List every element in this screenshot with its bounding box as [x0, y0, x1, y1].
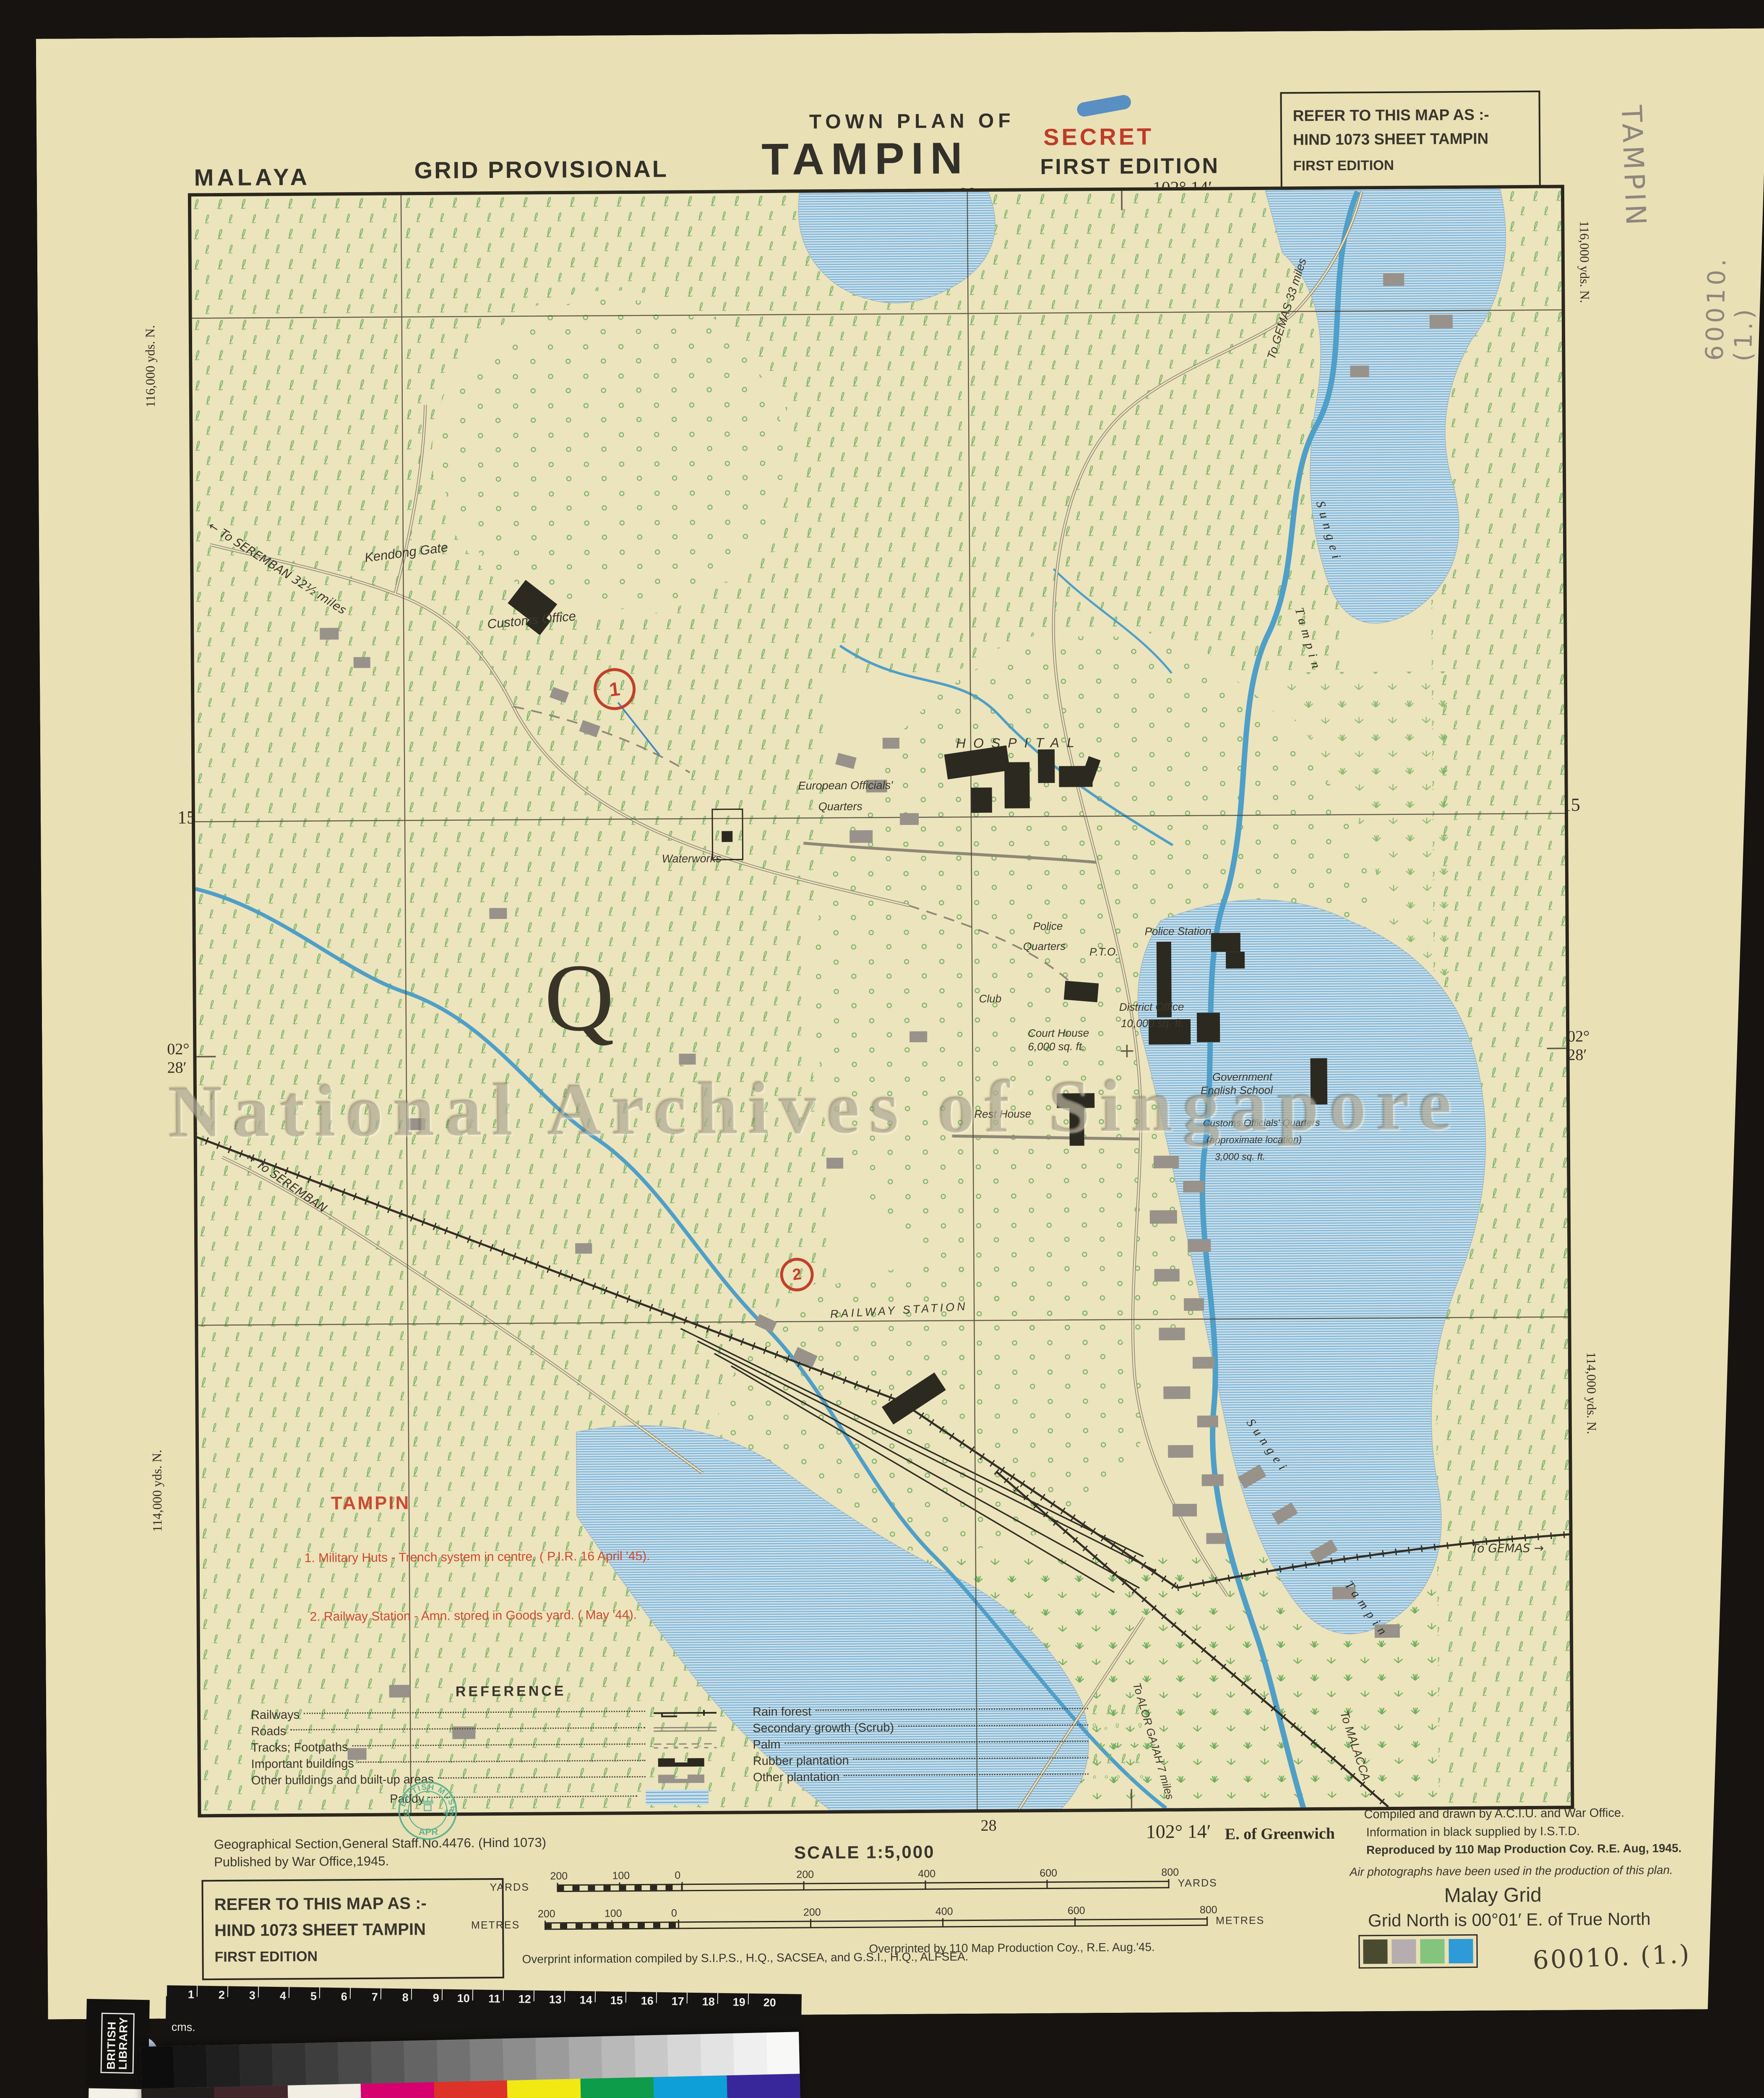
legend-row-other-plantation: Other plantation ₒ ₒ ₒ ₒ ₒ: [753, 1767, 1177, 1786]
margin-label: 28′: [167, 1059, 187, 1077]
cm-ruler-cell: 7: [349, 1988, 380, 2018]
map-sheet: MALAYA GRID PROVISIONAL TOWN PLAN OF TAM…: [36, 28, 1764, 2019]
grayscale-step: [371, 2041, 405, 2084]
map-label: Police: [1033, 920, 1063, 933]
color-patch: [434, 2080, 508, 2098]
grayscale-step: [239, 2044, 273, 2087]
secret-stamp: SECRET: [1043, 123, 1154, 151]
yards-ticks: 2001000200400600800: [557, 1866, 1211, 1871]
important-building-icon: [650, 1754, 734, 1769]
ink-blot: [1076, 94, 1132, 118]
color-patch: [580, 2077, 655, 2098]
map-title: TAMPIN: [761, 133, 969, 185]
paddy-symbol-icon: [641, 1788, 725, 1807]
map-label: Police Station: [1145, 925, 1212, 938]
red-note-title: TAMPIN: [331, 1493, 411, 1514]
map-label: European Officials': [798, 779, 893, 792]
map-area: ℓ ℓ: [188, 185, 1574, 1817]
scale-title: SCALE 1:5,000: [794, 1842, 935, 1863]
cm-ruler-cell: 10: [441, 1989, 472, 2019]
map-label: Court House: [1028, 1026, 1089, 1040]
map-label: Government: [1212, 1070, 1272, 1084]
scale-bar-yards: YARDS 2001000200400600800 YARDS: [557, 1866, 1211, 1900]
legend-row-other-buildings: Other buildings and built-up areas: [251, 1770, 734, 1789]
margin-labels: 28102° 14′116,000 yds. N.1502°28′114,000…: [36, 28, 1764, 39]
margin-label: 28′: [1567, 1046, 1587, 1064]
color-patch: [654, 2075, 728, 2098]
grayscale-step: [733, 2033, 767, 2075]
map-label: HOSPITAL: [956, 735, 1082, 751]
grayscale-step: [437, 2039, 471, 2082]
cm-ruler-cell: 3: [227, 1986, 258, 2016]
published-credit: Published by War Office,1945.: [214, 1854, 389, 1870]
legend-right-column: Rain forest ℓ ℓ ℓ ℓ Secondary growth (Sc…: [753, 1701, 1177, 1806]
margin-label: 116,000 yds. N.: [1576, 221, 1592, 303]
legend-row-rubber: Rubber plantation ℓ ℓ ℓ ℓ: [753, 1751, 1177, 1769]
legend-row-palm: Palm: [753, 1734, 1176, 1753]
cm-ruler-cell: 5: [288, 1987, 319, 2017]
color-patch: [288, 2084, 362, 2098]
margin-label: 28: [981, 1816, 997, 1835]
grayscale-step: [404, 2040, 438, 2083]
cm-ruler-cell: 18: [686, 1993, 717, 2022]
cm-ruler-cell: 20: [748, 1994, 779, 2023]
information-credit: Information in black supplied by I.S.T.D…: [1366, 1824, 1580, 1840]
other-building-icon: [650, 1771, 734, 1785]
margin-label: 114,000 yds. N.: [149, 1450, 165, 1532]
compiled-credit: Compiled and drawn by A.C.I.U. and War O…: [1364, 1806, 1624, 1822]
grayscale-step: [305, 2042, 339, 2085]
scanned-map-page: MALAYA GRID PROVISIONAL TOWN PLAN OF TAM…: [0, 0, 1764, 2098]
metres-unit-left: METRES: [471, 1919, 520, 1932]
red-note-1: 1. Military Huts - Trench system in cent…: [305, 1549, 650, 1566]
palm-icon: [1092, 1735, 1176, 1750]
grayscale-step: [338, 2041, 372, 2084]
cm-ruler-unit: cms.: [172, 2021, 195, 2034]
secondary-growth-icon: º ₒ º ₒ º: [1092, 1721, 1176, 1732]
grid-provisional-title: GRID PROVISIONAL: [414, 155, 668, 184]
legend-title: REFERENCE: [251, 1682, 771, 1701]
region-title: MALAYA: [194, 163, 310, 191]
grayscale-step: [766, 2032, 800, 2075]
grayscale-step: [503, 2038, 537, 2081]
edition-title: FIRST EDITION: [1040, 153, 1219, 180]
grayscale-step: [634, 2035, 668, 2077]
annotation-number: 1: [608, 677, 621, 701]
map-label: 6,000 sq. ft.: [1028, 1040, 1085, 1053]
map-label: P.T.O.: [1089, 945, 1119, 958]
margin-label: 02°: [1567, 1027, 1589, 1046]
map-label: (approximate location): [1206, 1134, 1302, 1146]
grid-north-note: Grid North is 00°01′ E. of True North: [1368, 1909, 1651, 1931]
metres-unit-right: METRES: [1216, 1915, 1264, 1927]
map-label: Quarters: [818, 800, 862, 814]
cm-ruler-cell: 12: [503, 1990, 534, 2020]
grayscale-step: [469, 2038, 503, 2081]
stamp-month: APR: [419, 1827, 438, 1837]
refer-line-2: HIND 1073 SHEET TAMPIN: [1293, 126, 1528, 152]
yards-unit-right: YARDS: [1178, 1877, 1217, 1890]
margin-label: 102° 14′: [1146, 1820, 1211, 1843]
cm-ruler-cell: 2: [196, 1986, 227, 2015]
malay-grid-label: Malay Grid: [1444, 1884, 1542, 1907]
grayscale-step: [206, 2045, 240, 2088]
railway-symbol-icon: [649, 1706, 733, 1719]
grayscale-step: [141, 2046, 175, 2089]
plan-of-title: TOWN PLAN OF: [809, 109, 1015, 133]
map-label: English School: [1201, 1084, 1273, 1097]
pencil-accession-number: 60010. (1.): [1700, 255, 1760, 362]
map-label: Waterworks: [662, 852, 721, 866]
legend-left-column: Railways Roads Tracks; Footpaths Im: [251, 1704, 734, 1809]
map-label: To GEMAS →: [1472, 1541, 1544, 1555]
map-label: Rest House: [974, 1107, 1031, 1121]
cm-ruler-cell: 9: [411, 1989, 442, 2019]
cm-ruler-cell: 8: [380, 1988, 411, 2018]
color-patch: [361, 2082, 435, 2098]
road-symbol-icon: [649, 1722, 733, 1735]
grayscale-step: [173, 2045, 207, 2088]
map-label: Customs Officials' Quarters: [1203, 1117, 1320, 1129]
refer-line-3: FIRST EDITION: [1293, 154, 1528, 177]
annotation-number: 2: [792, 1265, 803, 1284]
stamp-left-digit: 9: [403, 1807, 408, 1818]
cm-ruler-cell: 13: [533, 1991, 564, 2020]
map-label: 3,000 sq. ft.: [1215, 1151, 1265, 1163]
british-library-logo: BRITISH LIBRARY: [100, 2012, 134, 2073]
color-patch: [507, 2079, 582, 2098]
legend: REFERENCE Railways Roads Tracks; Footpat…: [251, 1679, 1200, 1809]
map-label: Quarters: [1023, 940, 1066, 953]
color-swatch: [1363, 1939, 1387, 1964]
air-photo-note: Air photographs have been used in the pr…: [1350, 1863, 1673, 1879]
map-label: District Office: [1119, 1000, 1184, 1014]
cm-ruler-cell: 16: [625, 1992, 656, 2022]
rain-forest-icon: ℓ ℓ ℓ ℓ: [1092, 1702, 1176, 1717]
margin-label: E. of Greenwich: [1225, 1824, 1335, 1844]
refer-box-top: REFER TO THIS MAP AS :- HIND 1073 SHEET …: [1280, 91, 1540, 189]
grayscale-step: [667, 2034, 701, 2077]
scale-bar-metres: METRES 2001000200400600800 METRES: [545, 1904, 1258, 1937]
map-label: 10,000 sq. ft.: [1121, 1017, 1184, 1030]
cm-ruler-cell: 1: [166, 1985, 197, 2015]
yards-unit-left: YARDS: [490, 1881, 529, 1894]
margin-label: 02°: [167, 1040, 189, 1058]
cm-ruler-cell: 17: [656, 1992, 687, 2022]
grayscale-step: [700, 2033, 734, 2076]
color-swatch: [1449, 1939, 1473, 1963]
grayscale-step: [568, 2036, 602, 2079]
refer-line-2: HIND 1073 SHEET TAMPIN: [214, 1916, 491, 1944]
big-q-letter: Q: [544, 949, 615, 1046]
other-plantation-icon: ₒ ₒ ₒ ₒ ₒ: [1093, 1770, 1177, 1781]
overprint-credit-2: Overprinted by 110 Map Production Coy., …: [869, 1940, 1155, 1955]
metres-ticks: 2001000200400600800: [545, 1904, 1258, 1908]
geo-section-credit: Geographical Section,General Staff.No.44…: [214, 1835, 546, 1852]
british-library-card: BRITISH LIBRARY: [85, 1999, 150, 2088]
map-graphics: ℓ ℓ: [191, 188, 1571, 1814]
margin-label: 114,000 yds. N.: [1584, 1352, 1599, 1434]
rubber-plantation-icon: ℓ ℓ ℓ ℓ: [1093, 1751, 1177, 1767]
refer-line-3: FIRST EDITION: [214, 1944, 491, 1968]
color-patch: [727, 2074, 801, 2098]
refer-line-1: REFER TO THIS MAP AS :-: [214, 1890, 491, 1918]
stamp-right-digits: 49: [443, 1807, 454, 1818]
refer-box-bottom: REFER TO THIS MAP AS :- HIND 1073 SHEET …: [201, 1878, 504, 1980]
reproduced-credit: Reproduced by 110 Map Production Coy. R.…: [1366, 1842, 1682, 1857]
cm-ruler-cell: 6: [319, 1988, 350, 2017]
color-swatch: [1420, 1939, 1444, 1963]
grayscale-step: [601, 2035, 635, 2078]
cm-ruler-cell: 11: [472, 1990, 503, 2020]
color-patch: [141, 2087, 216, 2098]
red-note-2: 2. Railway Station - Amn. stored in Good…: [310, 1608, 637, 1624]
refer-line-1: REFER TO THIS MAP AS :-: [1293, 102, 1528, 128]
map-label: Club: [979, 992, 1002, 1005]
track-symbol-icon: [649, 1739, 733, 1752]
cm-ruler-cell: 15: [594, 1991, 625, 2021]
pencil-sheet-name: TAMPIN: [1615, 104, 1652, 229]
cm-ruler-cell: 4: [258, 1986, 289, 2016]
grayscale-step: [535, 2037, 569, 2080]
legend-row-secondary-growth: Secondary growth (Scrub) º ₒ º ₒ º: [753, 1718, 1176, 1737]
color-swatch: [1391, 1939, 1416, 1964]
stamp-crown-icon: [422, 1796, 433, 1811]
accession-stamp-number: 60010. (1.): [1532, 1939, 1691, 1975]
color-patch: [214, 2085, 289, 2098]
color-swatches: [1358, 1934, 1477, 1969]
cm-ruler-cell: 19: [717, 1993, 748, 2023]
legend-row-rain-forest: Rain forest ℓ ℓ ℓ ℓ: [753, 1701, 1176, 1720]
british-museum-stamp: BRITISH MUSEUM 9 49 APR: [394, 1777, 461, 1845]
grayscale-step: [272, 2043, 306, 2086]
cm-ruler-cell: 14: [564, 1991, 595, 2021]
margin-label: 116,000 yds. N.: [143, 325, 158, 407]
